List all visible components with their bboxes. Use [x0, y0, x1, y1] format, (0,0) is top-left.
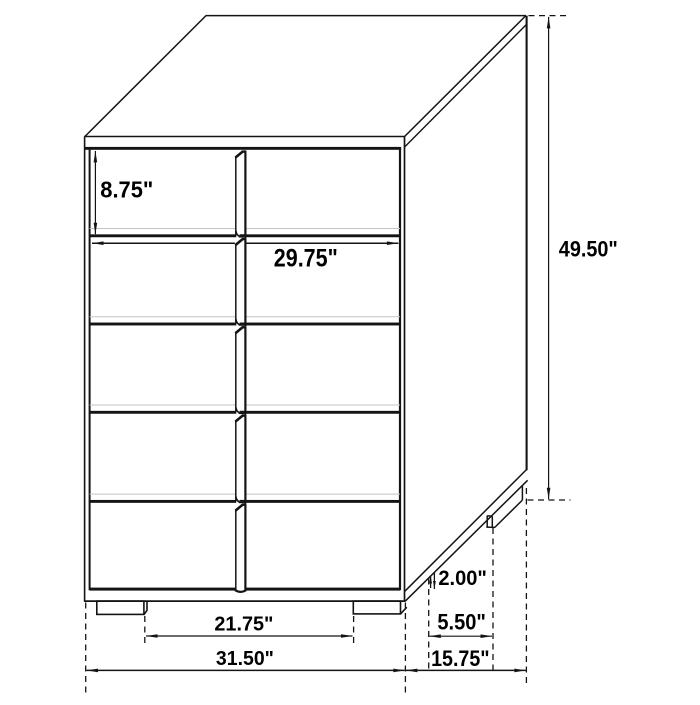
- svg-text:5.50": 5.50": [437, 610, 486, 635]
- svg-text:15.75": 15.75": [431, 646, 490, 671]
- svg-text:49.50": 49.50": [559, 237, 618, 262]
- svg-text:29.75": 29.75": [274, 244, 338, 272]
- svg-text:21.75": 21.75": [214, 613, 273, 635]
- svg-text:2.00": 2.00": [438, 567, 487, 590]
- svg-text:8.75": 8.75": [100, 177, 153, 203]
- svg-text:31.50": 31.50": [216, 648, 274, 670]
